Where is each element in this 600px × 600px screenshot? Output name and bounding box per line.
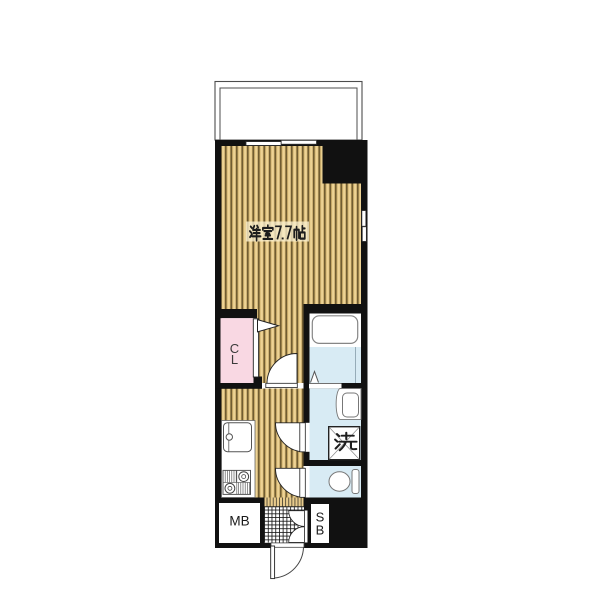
svg-text:B: B [316,523,325,538]
svg-text:L: L [231,352,238,367]
svg-text:MB: MB [229,514,249,529]
